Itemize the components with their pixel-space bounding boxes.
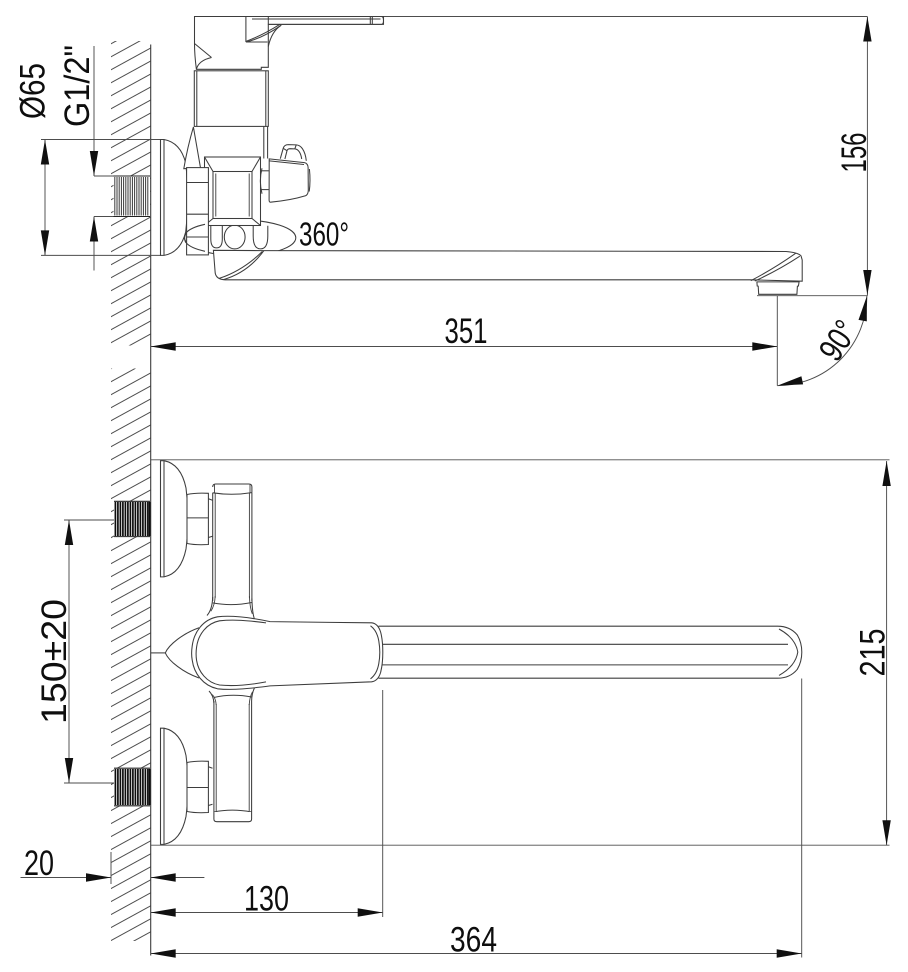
svg-text:364: 364 [450, 921, 497, 960]
svg-text:360°: 360° [299, 216, 349, 253]
svg-text:156: 156 [835, 133, 874, 173]
svg-text:130: 130 [244, 880, 289, 919]
svg-text:215: 215 [854, 629, 893, 677]
svg-text:Ø65: Ø65 [14, 63, 53, 119]
svg-text:351: 351 [445, 312, 488, 351]
svg-text:150±20: 150±20 [35, 599, 74, 724]
svg-text:20: 20 [24, 844, 54, 883]
svg-text:G1/2": G1/2" [58, 45, 97, 127]
